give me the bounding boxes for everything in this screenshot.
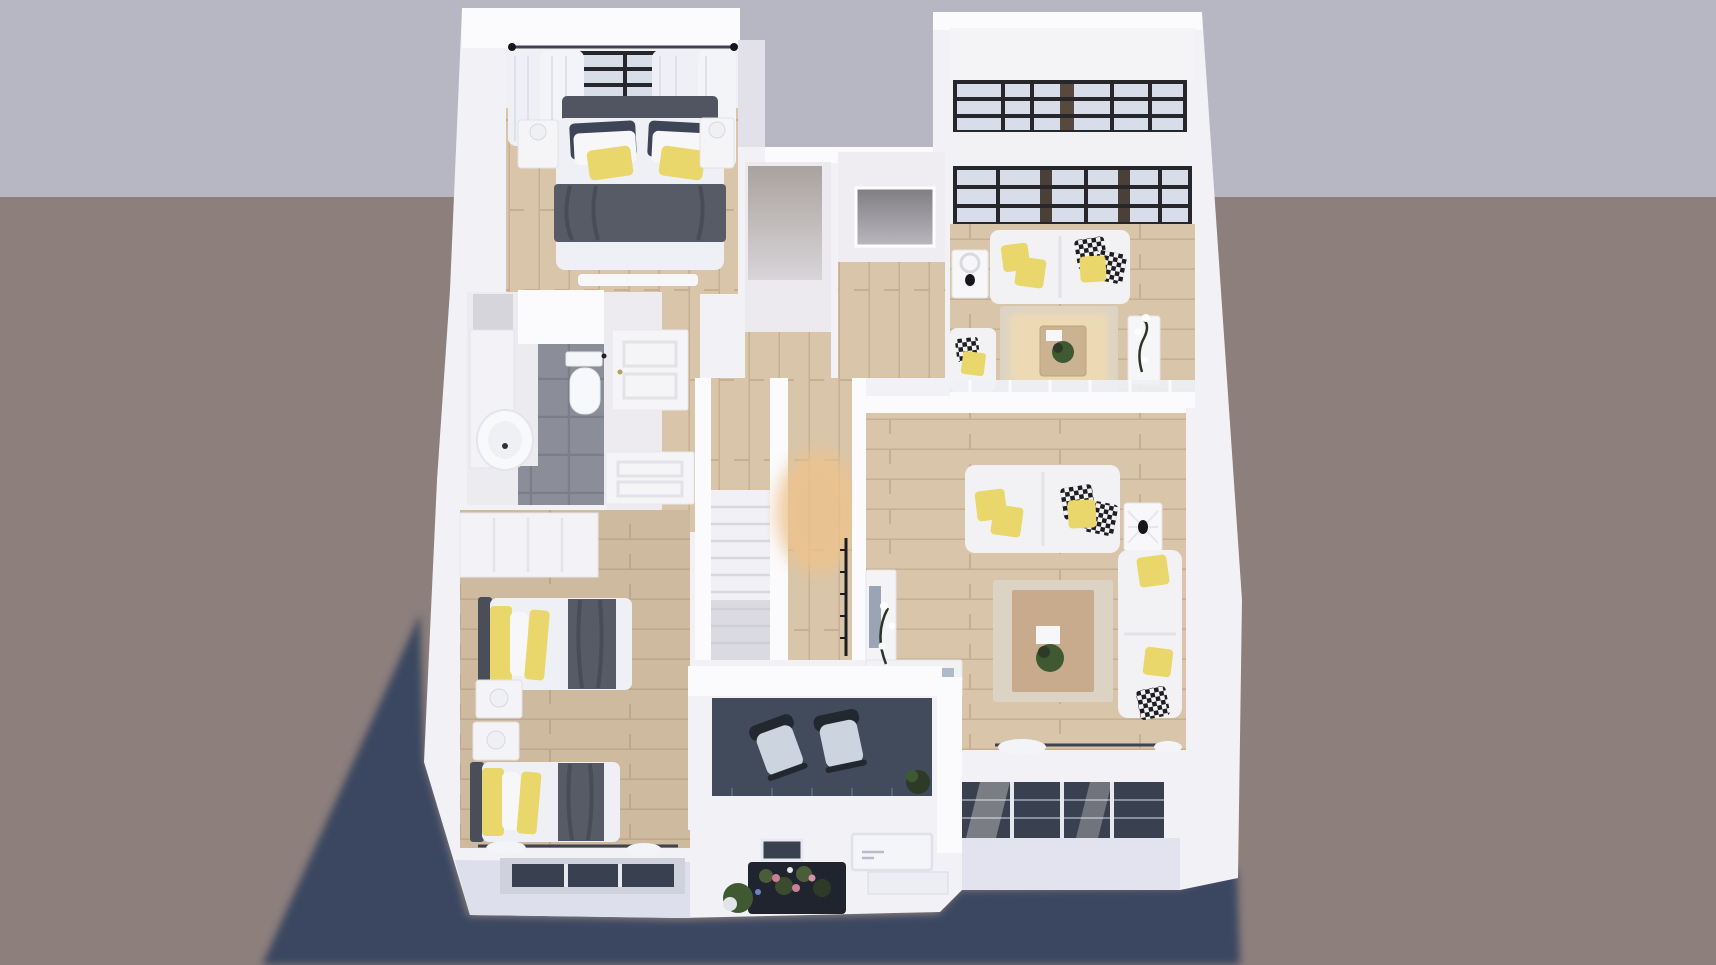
basin-inner [488,421,522,459]
living-sofa-top [965,465,1120,553]
console [1128,316,1160,384]
yellow-pillow [1067,499,1096,528]
stair-depth-shade [711,600,770,660]
planter-bloom-pink [809,875,816,882]
curtain-bunch [1154,741,1182,753]
planter-bloom-pink [792,884,800,892]
balcony-parapet-top [688,666,942,696]
rod-finial [730,43,738,51]
yellow-pillow [1014,256,1047,289]
plant [1053,343,1063,353]
stair-wall-left [695,378,711,660]
bed-headboard [470,762,484,842]
flower-planter [748,862,846,914]
room-balcony [688,666,942,830]
yellow-pillow [658,145,706,181]
kids-bed-2 [470,762,620,842]
yellow-pillow [1142,646,1173,677]
bird-lamp [1138,520,1148,534]
facade-hatch [868,872,948,894]
kids-closet [460,513,598,577]
floorplan-render [0,0,1716,965]
wardrobe-panel [748,166,822,280]
lounge-window-band-upper [955,82,1185,132]
lounge-top-wall [933,12,1202,30]
curtain-bunch [998,739,1046,755]
closet-floor-wood [745,332,831,378]
curtain-bunch [626,843,662,857]
kids-bed-1 [478,597,632,690]
living-top-wall [866,396,1186,413]
window-column [1118,168,1130,224]
entry-door [852,834,932,870]
nightstand-right [700,118,734,168]
tray [1036,626,1060,644]
flower-bloom [880,602,888,610]
facade-right-parapet [962,838,1180,890]
lounge-side-table [952,250,988,298]
living-divider-wall [852,378,866,660]
bed-blanket [558,763,604,841]
table-lamp [709,122,725,138]
room-master-bedroom [506,43,738,294]
living-rug-and-table [993,580,1113,702]
basin [477,410,533,470]
yellow-pillow [990,504,1024,538]
bed-headboard [478,597,492,689]
room-walk-in-closet [745,162,831,378]
bed-blanket [568,599,616,689]
planter-bloom-white [787,867,793,873]
bedroom-top-wall [462,8,740,48]
facade-bush [723,883,753,913]
yellow-pillow [482,768,504,836]
screen-face [869,586,881,648]
flower-bloom [1135,329,1142,336]
bedroom-right-outer-wall [738,40,765,147]
kids-nightstand-1 [476,680,522,718]
toilet-bowl [570,368,600,414]
lounge-coffee-table [1040,326,1086,376]
bird-lamp [965,274,975,286]
faucet [502,443,508,449]
rod-finial [508,43,516,51]
curtain-bunch [486,841,526,855]
yellow-pillow [961,351,987,377]
table-lamp [530,124,546,140]
toilet-tank [566,352,602,366]
tray [1046,330,1062,341]
room-hallway [606,292,700,532]
window-column [1040,168,1052,224]
flower-bloom [879,643,886,650]
planter-foliage [813,879,831,897]
door-leaf-upper [612,330,688,410]
table-lamp [490,689,508,707]
lounge-window-band-lower [955,168,1190,224]
living-sofa-right [1118,550,1182,721]
balcony-side-wall [937,677,962,853]
yellow-pillow [586,145,634,181]
planter-bloom-pink [772,874,780,882]
flower-bloom [1142,314,1150,322]
patterned-pillow [1135,685,1170,720]
room-bathroom [467,290,607,505]
window-slots [512,864,674,887]
entry-floor-wood [838,262,945,378]
balcony-floor [712,698,932,796]
table-lamp [487,731,505,749]
window-glass [955,168,1190,224]
lounge-upper-wall [950,28,1195,82]
lounge-console [1128,314,1160,384]
facade-left-windows [500,858,685,894]
door-handle [618,370,623,375]
planter-bloom-blue [755,889,761,895]
room-staircase [695,378,866,660]
window-column [1060,82,1074,132]
flower-bloom [1142,357,1149,364]
kids-nightstand-2 [473,722,519,760]
room-entry-hall [838,152,945,378]
lounge-wall-band [950,132,1195,168]
scene-canvas [0,0,1716,965]
stair-landing-top [711,378,770,490]
flush-button [602,354,607,359]
yellow-pillow [1079,255,1106,282]
nightstand-left [518,120,558,168]
plant [1038,646,1050,658]
mirror-panel [856,188,934,246]
lounge-sofa [990,230,1130,304]
white-pillow [502,772,520,830]
yellow-pillow [490,606,512,682]
room-kids-bedroom [460,510,690,857]
door-leaf-lower [606,452,694,504]
partition [518,290,604,344]
balcony-plant [906,770,918,782]
vent-opening [762,840,802,860]
planter-foliage [759,869,773,883]
living-side-table [1124,503,1162,551]
bush-blooms [723,897,737,911]
foot-bench [578,274,698,286]
balustrade-glass [950,380,1195,392]
yellow-pillow [1136,554,1170,588]
flower-bloom [889,623,896,630]
room-lounge [950,28,1195,408]
wall-niche [473,294,513,330]
